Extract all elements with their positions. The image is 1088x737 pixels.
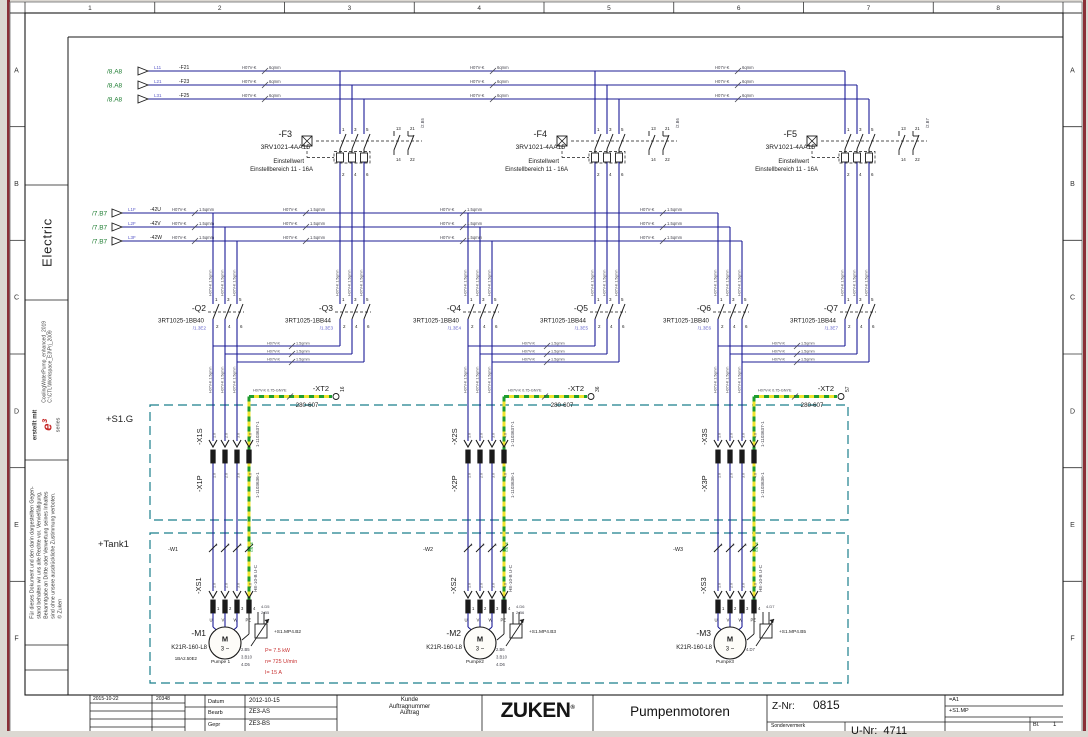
wire-gauge: H07V-K 1.5qmm: [714, 367, 718, 393]
connector-plug-pin[interactable]: [211, 450, 215, 463]
cross-reference: 4.D6: [516, 604, 525, 609]
wire-gauge: H07V-K 1.5qmm: [336, 270, 340, 296]
wire-gauge: H07V-K: [470, 65, 485, 70]
znr-value: 0815: [813, 699, 840, 712]
socket-pin[interactable]: [476, 591, 484, 598]
pin-number: 2: [229, 606, 232, 611]
wire-gauge: H07V-K 1.5qmm: [221, 270, 225, 296]
wire-gauge: H07V-K: [522, 350, 536, 354]
pin-number: 5: [366, 127, 369, 132]
overload-element[interactable]: [842, 153, 849, 162]
wire-gauge: 6qmm: [269, 65, 281, 70]
pe-terminal-point[interactable]: [838, 394, 844, 400]
wire-gauge: 1.5qmm: [296, 342, 310, 346]
pin-number: 2: [343, 324, 346, 329]
core-number: GNYE: [250, 541, 254, 552]
pin-number: 1: [597, 297, 600, 302]
core-number: GNYE: [505, 541, 509, 552]
wire-gauge: H07V-K 1.5qmm: [853, 270, 857, 296]
wire-gauge: 1.5qmm: [467, 207, 483, 212]
wire-gauge: H07V-K: [242, 93, 257, 98]
component-note: Einstellbereich 11 - 16A: [250, 167, 313, 173]
wire-gauge: 1.5qmm: [801, 342, 815, 346]
wire-gauge: 1.5qmm: [667, 235, 683, 240]
pin-number: 1.0: [718, 433, 722, 438]
socket-pin[interactable]: [466, 600, 470, 613]
wire-gauge: 1.5qmm: [667, 221, 683, 226]
pin-number: 36: [595, 386, 601, 392]
socket-pin[interactable]: [478, 600, 482, 613]
sheet-number: 1: [1053, 722, 1056, 729]
pin-number: 4: [859, 172, 862, 177]
component-code: 1BA2.50E2: [175, 656, 198, 661]
wire-gauge: H07V-K: [470, 93, 485, 98]
grid-row-label: B: [14, 181, 19, 188]
pin-number: 4: [355, 324, 358, 329]
cross-reference: 4.D6: [496, 662, 506, 667]
connector-plug-pin[interactable]: [728, 450, 732, 463]
device-reference: -F21: [179, 65, 190, 71]
sheet-reference: /7.B7: [92, 239, 108, 246]
wire-gauge: H07V-K 1.5qmm: [488, 367, 492, 393]
location-label-tank1: +Tank1: [98, 540, 129, 550]
wire-gauge: H07V-K 1.5qmm: [615, 270, 619, 296]
cross-reference: /1.3E4: [448, 326, 462, 331]
cross-reference: 2.B6: [516, 610, 525, 615]
pin-number: 6: [872, 324, 875, 329]
wire-name: L21: [154, 79, 162, 84]
contactor-contact: [340, 304, 346, 319]
connector-plug-pin[interactable]: [247, 450, 251, 463]
pin-number: 6: [622, 324, 625, 329]
location-label-s1g: +S1.G: [106, 415, 133, 425]
wire-gauge: H07V-K 1.5qmm: [476, 367, 480, 393]
breaker-contact: [340, 134, 346, 149]
component-name: -Q6: [697, 303, 711, 313]
grid-row-label: D: [1070, 408, 1075, 415]
wire-gauge: H07V-K 1.5qmm: [726, 270, 730, 296]
component-type: HE-10-B U-C: [253, 564, 258, 592]
component-name: -W1: [168, 547, 178, 553]
component-name: -XT2: [818, 384, 834, 393]
pin-number: 4: [508, 606, 511, 611]
pin-number: 3.0: [492, 473, 496, 478]
off-sheet-arrow-icon: [112, 223, 122, 231]
cross-reference: /2.B6: [675, 118, 680, 128]
cross-reference: 4.D5: [241, 662, 251, 667]
pin-number: 21: [410, 126, 415, 131]
overload-element[interactable]: [866, 153, 873, 162]
socket-pin[interactable]: [738, 591, 746, 598]
pin-number: 21: [665, 126, 670, 131]
socket-pin[interactable]: [235, 600, 239, 613]
connector-plug-pin[interactable]: [740, 450, 744, 463]
component-name: -F5: [784, 129, 798, 139]
contactor-contact: [237, 304, 243, 319]
socket-pin[interactable]: [488, 591, 496, 598]
pin-number: 5: [871, 127, 874, 132]
revision-number: 20348: [156, 697, 170, 703]
connector-socket-pin[interactable]: [738, 440, 746, 447]
pin-number: 3: [859, 127, 862, 132]
cross-reference: 2.B6: [496, 647, 505, 652]
grid-row-label: D: [14, 408, 19, 415]
pin-number: 2.0: [225, 473, 229, 478]
wire-gauge: H07V-K 0.75-GNYE: [508, 389, 542, 393]
cross-reference: /1.3E2: [193, 326, 207, 331]
pin-number: 14: [396, 157, 401, 162]
grid-row-label: C: [1070, 295, 1075, 302]
cross-reference: /1.3E5: [575, 326, 589, 331]
pin-number: 6: [366, 172, 369, 177]
wire-gauge: H07V-K 1.5qmm: [865, 270, 869, 296]
grid-column-label: 4: [477, 5, 481, 12]
pin-number: 1.0: [718, 473, 722, 478]
socket-pin[interactable]: [716, 600, 720, 613]
component-note: Einstellwert: [273, 159, 304, 165]
component-name: -W2: [423, 547, 433, 553]
wire-gauge: H07V-K 1.5qmm: [738, 270, 742, 296]
pin-number: 4.0: [504, 583, 508, 588]
wire-gauge: 6qmm: [742, 93, 754, 98]
overload-element[interactable]: [349, 153, 356, 162]
cross-reference: 3.B10: [241, 655, 253, 660]
sensor-arrow: [756, 619, 774, 646]
wire-gauge: H07V-K 1.5qmm: [714, 270, 718, 296]
pin-number: 4.0: [754, 583, 758, 588]
pin-number: 1: [342, 127, 345, 132]
cross-reference: /1.3E7: [825, 326, 839, 331]
component-name: -F4: [534, 129, 548, 139]
bearb-value: ZE3-AS: [249, 709, 270, 716]
contactor-contact: [857, 304, 863, 319]
pin-number: 4: [733, 324, 736, 329]
wire-gauge: H07V-K: [172, 207, 187, 212]
pin-number: 5: [744, 297, 747, 302]
wire-gauge: H07V-K: [267, 350, 281, 354]
cross-reference: 2.B5: [241, 647, 250, 652]
sheet-reference: /7.B7: [92, 225, 108, 232]
wire-gauge: H07V-K: [772, 358, 786, 362]
pin-number: 21: [915, 126, 920, 131]
pin-number: 4: [758, 606, 761, 611]
terminal-label: U: [210, 618, 213, 623]
connector-plug-pin[interactable]: [235, 450, 239, 463]
pin-number: 2: [484, 606, 487, 611]
gepr-value: ZE3-BS: [249, 721, 270, 728]
wire-gauge: H07V-K: [772, 342, 786, 346]
wire-gauge: H07V-K: [242, 79, 257, 84]
pin-number: 1: [847, 297, 850, 302]
connector-socket-pin[interactable]: [476, 440, 484, 447]
connector-plug-pin[interactable]: [490, 450, 494, 463]
discipline-label: Electric: [39, 218, 54, 267]
overload-element[interactable]: [361, 153, 368, 162]
wire-gauge: H07V-K 1.5qmm: [360, 270, 364, 296]
pin-number: 1: [215, 297, 218, 302]
schematic-canvas: 12345678AABBCCDDEEFF/8.A8L11-F21H07V-K6q…: [0, 0, 1088, 731]
terminal-label: V: [727, 618, 730, 623]
socket-pin[interactable]: [223, 600, 227, 613]
breaker-contact: [845, 134, 851, 149]
component-type: 3RT1025-1BB40: [663, 318, 710, 325]
component-name: -Q5: [574, 303, 588, 313]
wire-gauge: H07V-K: [172, 221, 187, 226]
component-name: -M3: [696, 628, 711, 638]
grid-row-label: F: [14, 636, 18, 643]
off-sheet-arrow-icon: [138, 95, 148, 103]
pe-terminal-point[interactable]: [333, 394, 339, 400]
wire-name: L11: [154, 65, 162, 70]
socket-pin[interactable]: [464, 591, 472, 598]
component-note: Einstellwert: [528, 159, 559, 165]
grid-row-label: A: [1070, 67, 1075, 74]
pin-number: 3: [354, 297, 357, 302]
motor-spec: I= 15 A: [265, 670, 282, 676]
pin-number: 2.0: [225, 433, 229, 438]
pin-number: 2.0: [225, 583, 229, 588]
pin-number: 2.0: [480, 433, 484, 438]
pin-number: 1: [342, 297, 345, 302]
connector-plug-pin[interactable]: [466, 450, 470, 463]
connector-socket-pin[interactable]: [221, 440, 229, 447]
sheet-number-label: Bl.: [1033, 722, 1039, 728]
pin-number: 2: [597, 172, 600, 177]
component-type: 1-1103637-1: [760, 421, 765, 447]
pin-number: 3.0: [492, 583, 496, 588]
pin-number: 4: [609, 172, 612, 177]
wire-gauge: H07V-K: [522, 358, 536, 362]
created-with-label: erstellt mit: [32, 409, 38, 439]
wire-gauge: 1.5qmm: [667, 207, 683, 212]
overload-element[interactable]: [604, 153, 611, 162]
contactor-contact: [468, 304, 474, 319]
wire-gauge: H07V-K 1.5qmm: [464, 367, 468, 393]
pin-number: 2: [721, 324, 724, 329]
pin-number: 14: [901, 157, 906, 162]
motor-spec: P= 7.5 kW: [265, 648, 291, 654]
pin-number: 2: [848, 324, 851, 329]
socket-pin[interactable]: [502, 600, 506, 613]
socket-pin[interactable]: [209, 591, 217, 598]
wire-gauge: H07V-K: [267, 342, 281, 346]
socket-pin[interactable]: [740, 600, 744, 613]
wire-gauge: H07V-K 1.5qmm: [233, 367, 237, 393]
pin-number: 4: [253, 606, 256, 611]
connector-socket-pin[interactable]: [714, 440, 722, 447]
aux-contact: [394, 135, 400, 150]
component-type: 280-607: [551, 402, 574, 409]
pin-number: 3.0: [237, 473, 241, 478]
component-type: 3RV1021-4AA15: [766, 144, 816, 151]
pin-number: 2.0: [730, 473, 734, 478]
pin-number: 2: [734, 606, 737, 611]
socket-pin[interactable]: [221, 591, 229, 598]
pin-number: 3.0: [742, 583, 746, 588]
breaker-contact: [869, 134, 875, 149]
socket-pin[interactable]: [490, 600, 494, 613]
grid-row-label: C: [14, 295, 19, 302]
socket-pin[interactable]: [233, 591, 241, 598]
device-reference: -42V: [150, 221, 161, 227]
wire-gauge: H07V-K: [242, 65, 257, 70]
terminal-label: U: [465, 618, 468, 623]
wire-gauge: H07V-K 1.5qmm: [221, 367, 225, 393]
component-name: -M1: [191, 628, 206, 638]
socket-pin[interactable]: [211, 600, 215, 613]
connector-socket-pin[interactable]: [233, 440, 241, 447]
wire-name: L3F: [128, 235, 136, 240]
pin-number: 1.0: [468, 433, 472, 438]
motor-phase: 3 ~: [726, 647, 735, 653]
component-type: 3RT1025-1BB40: [413, 318, 460, 325]
component-name: -W3: [673, 547, 683, 553]
wire-gauge: H07V-K: [283, 235, 298, 240]
component-name: -Q4: [447, 303, 461, 313]
motor-spec: n= 725 U/min: [265, 659, 297, 665]
sidebar-discipline-cell: Electric: [25, 185, 68, 300]
socket-pin[interactable]: [247, 600, 251, 613]
pin-number: 1: [722, 606, 725, 611]
wire-name: L31: [154, 93, 162, 98]
pin-number: 3: [732, 297, 735, 302]
connector-socket-pin[interactable]: [209, 440, 217, 447]
core-number: 3: [240, 543, 242, 547]
contactor-contact: [480, 304, 486, 319]
contactor-contact: [619, 304, 625, 319]
component-name: -XT2: [313, 384, 329, 393]
znr-label: Z-Nr:: [772, 701, 795, 712]
wire-gauge: 1.5qmm: [199, 235, 215, 240]
grid-column-label: 5: [607, 5, 611, 12]
component-type: 3RV1021-4AA15: [261, 144, 311, 151]
device-reference: -42U: [150, 207, 161, 213]
pin-number: 13: [901, 126, 906, 131]
connector-plug-pin[interactable]: [716, 450, 720, 463]
core-number: GNYE: [755, 541, 759, 552]
breaker-contact: [607, 134, 613, 149]
overload-element[interactable]: [592, 153, 599, 162]
connector-plug-pin[interactable]: [478, 450, 482, 463]
component-name: +S1.MP4.B3: [529, 629, 556, 635]
customer-block: Kunde Auftragnummer Auftrag: [337, 697, 482, 717]
sensor-arrow: [251, 619, 269, 646]
component-name: -X3P: [700, 475, 709, 492]
copyright-disclaimer: Für dieses Dokument und den darin darges…: [29, 486, 64, 618]
pin-number: 2: [598, 324, 601, 329]
connector-plug-pin[interactable]: [502, 450, 506, 463]
motor-letter: M: [477, 635, 483, 644]
pin-number: 13: [651, 126, 656, 131]
wire-gauge: H07V-K 1.5qmm: [348, 270, 352, 296]
wire-gauge: H07V-K 1.5qmm: [209, 367, 213, 393]
pin-number: 6: [495, 324, 498, 329]
component-type: K21R-160-L8: [676, 645, 712, 651]
connector-socket-pin[interactable]: [488, 440, 496, 447]
contactor-contact: [364, 304, 370, 319]
pin-number: 4: [483, 324, 486, 329]
pin-number: 3: [482, 297, 485, 302]
pin-number: 57: [845, 386, 851, 392]
wire-gauge: 1.5qmm: [467, 221, 483, 226]
cross-reference: /1.3E3: [320, 326, 334, 331]
socket-pin[interactable]: [728, 600, 732, 613]
pin-number: 2.0: [730, 433, 734, 438]
grid-row-label: E: [1070, 522, 1075, 529]
pin-number: 1: [720, 297, 723, 302]
breaker-contact: [595, 134, 601, 149]
wire-gauge: H07V-K: [715, 65, 730, 70]
connector-socket-pin[interactable]: [726, 440, 734, 447]
wire-gauge: H07V-K: [267, 358, 281, 362]
bearb-label: Bearb: [208, 710, 223, 716]
grid-column-label: 6: [737, 5, 741, 12]
wire-gauge: 1.5qmm: [551, 358, 565, 362]
component-name: -F3: [279, 129, 293, 139]
e3-series-logo-sub: series: [55, 417, 61, 432]
pin-number: 2: [471, 324, 474, 329]
unr-block: U-Nr: 4711: [851, 725, 907, 737]
socket-pin[interactable]: [726, 591, 734, 598]
pin-number: 4.0: [249, 583, 253, 588]
wire-gauge: H07V-K 1.5qmm: [488, 270, 492, 296]
off-sheet-arrow-icon: [138, 67, 148, 75]
wire-gauge: H07V-K: [772, 350, 786, 354]
pin-number: 5: [239, 297, 242, 302]
component-name: -X1S: [195, 428, 204, 445]
pin-number: 1.0: [468, 473, 472, 478]
cross-reference: /1.3E6: [698, 326, 712, 331]
wire-gauge: H07V-K: [715, 79, 730, 84]
contactor-contact: [869, 304, 875, 319]
motor-phase: 3 ~: [221, 647, 230, 653]
wire-name: L2F: [128, 221, 136, 226]
pin-number: 3: [859, 297, 862, 302]
connector-plug-pin[interactable]: [223, 450, 227, 463]
pin-number: 4.0: [754, 433, 758, 438]
contactor-contact: [845, 304, 851, 319]
pin-number: 2.0: [480, 583, 484, 588]
cross-reference: 4.D5: [261, 604, 270, 609]
overload-element[interactable]: [337, 153, 344, 162]
socket-pin[interactable]: [714, 591, 722, 598]
wire-gauge: H07V-K: [640, 207, 655, 212]
wire-gauge: 1.5qmm: [199, 221, 215, 226]
pin-number: 6: [871, 172, 874, 177]
wire-gauge: H07V-K 0.75-GNYE: [758, 389, 792, 393]
component-note: Einstellbereich 11 - 16A: [505, 167, 568, 173]
connector-plug-pin[interactable]: [752, 450, 756, 463]
contactor-contact: [352, 304, 358, 319]
wire-gauge: H07V-K: [715, 93, 730, 98]
wire-gauge: H07V-K: [440, 235, 455, 240]
pin-number: 5: [366, 297, 369, 302]
terminal-label: PE: [751, 618, 757, 623]
grid-column-label: 8: [996, 5, 1000, 12]
connector-socket-pin[interactable]: [464, 440, 472, 447]
overload-element[interactable]: [616, 153, 623, 162]
pe-terminal-point[interactable]: [588, 394, 594, 400]
pin-number: 3: [354, 127, 357, 132]
pin-number: 1: [847, 127, 850, 132]
pin-number: 4.0: [249, 473, 253, 478]
pin-number: 2.0: [730, 583, 734, 588]
contactor-contact: [492, 304, 498, 319]
component-name: +S1.MP4.B2: [274, 629, 301, 635]
overload-element[interactable]: [854, 153, 861, 162]
pin-number: 4.0: [249, 433, 253, 438]
socket-pin[interactable]: [752, 600, 756, 613]
